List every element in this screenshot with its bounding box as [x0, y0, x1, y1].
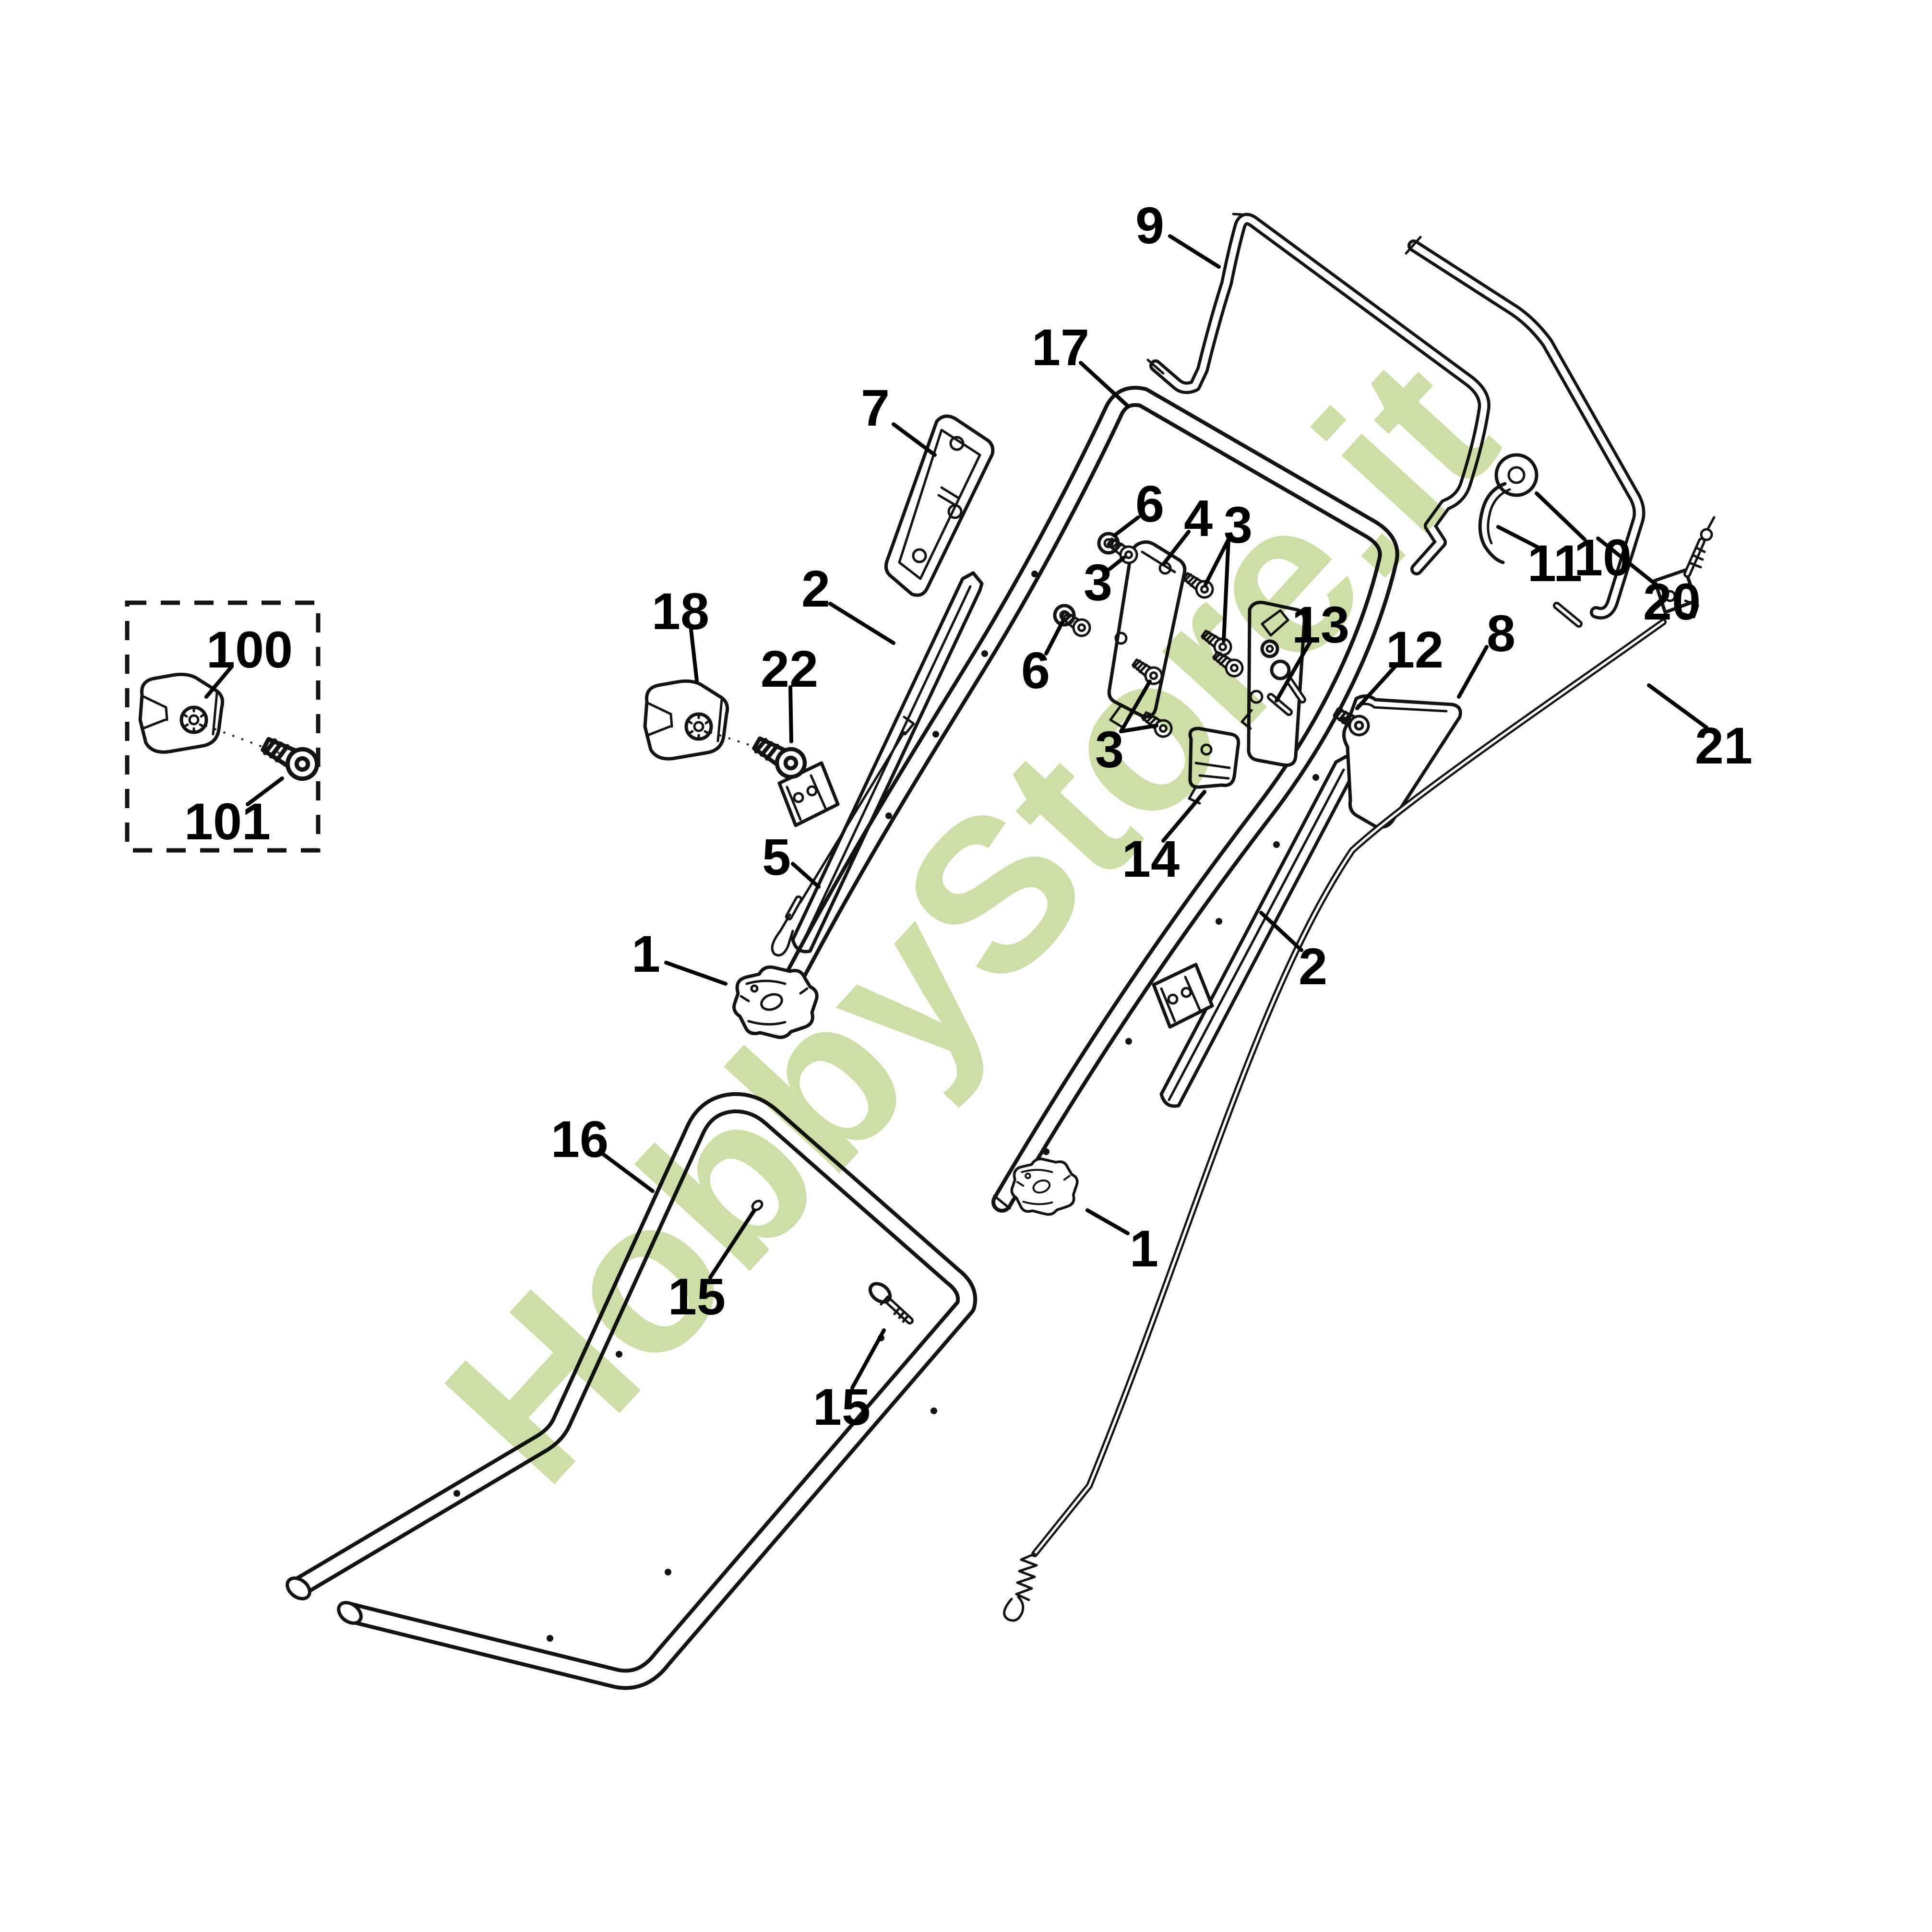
leader-line-9	[1170, 236, 1219, 267]
part-label-18: 18	[652, 582, 709, 640]
part-7-handle-cover	[886, 416, 992, 595]
leader-line-2	[830, 604, 894, 643]
part-label-7: 7	[861, 379, 890, 437]
leader-line-2	[1261, 913, 1301, 950]
part-label-15: 15	[813, 1378, 871, 1436]
leader-line-8	[1459, 647, 1487, 697]
parts-diagram-page: 9177201011643361312821222218511314161515…	[0, 0, 1932, 1932]
part-15-carriage-bolt	[867, 1280, 910, 1322]
leader-line-6	[1114, 517, 1138, 536]
part-label-100: 100	[206, 620, 293, 679]
cable-spring	[1004, 1554, 1037, 1621]
part-label-20: 20	[1643, 572, 1701, 631]
part-label-9: 9	[1135, 196, 1164, 254]
part-label-8: 8	[1487, 604, 1515, 662]
part-label-2: 2	[1299, 937, 1327, 995]
part-22-screw	[750, 731, 810, 782]
part-1-clamp-right	[1012, 1159, 1077, 1215]
leader-line-5	[793, 864, 819, 887]
part-label-1: 1	[1130, 1219, 1158, 1277]
part-18-lever	[645, 681, 727, 759]
leader-line-1	[666, 963, 726, 984]
leader-line-1	[1087, 1210, 1128, 1233]
part-label-21: 21	[1695, 716, 1753, 775]
part-101-screw	[259, 731, 322, 784]
part-label-6: 6	[1135, 475, 1164, 533]
part-label-17: 17	[1032, 318, 1089, 376]
part-label-11: 11	[1527, 534, 1582, 592]
part-label-5: 5	[762, 828, 791, 886]
part-label-2: 2	[801, 560, 830, 618]
exploded-parts-diagram: 9177201011643361312821222218511314161515…	[0, 0, 1932, 1932]
part-label-1: 1	[632, 925, 660, 983]
part-100-lever	[140, 674, 223, 752]
part-label-10: 10	[1574, 528, 1632, 586]
part-label-101: 101	[184, 792, 271, 850]
part-label-22: 22	[761, 640, 818, 698]
